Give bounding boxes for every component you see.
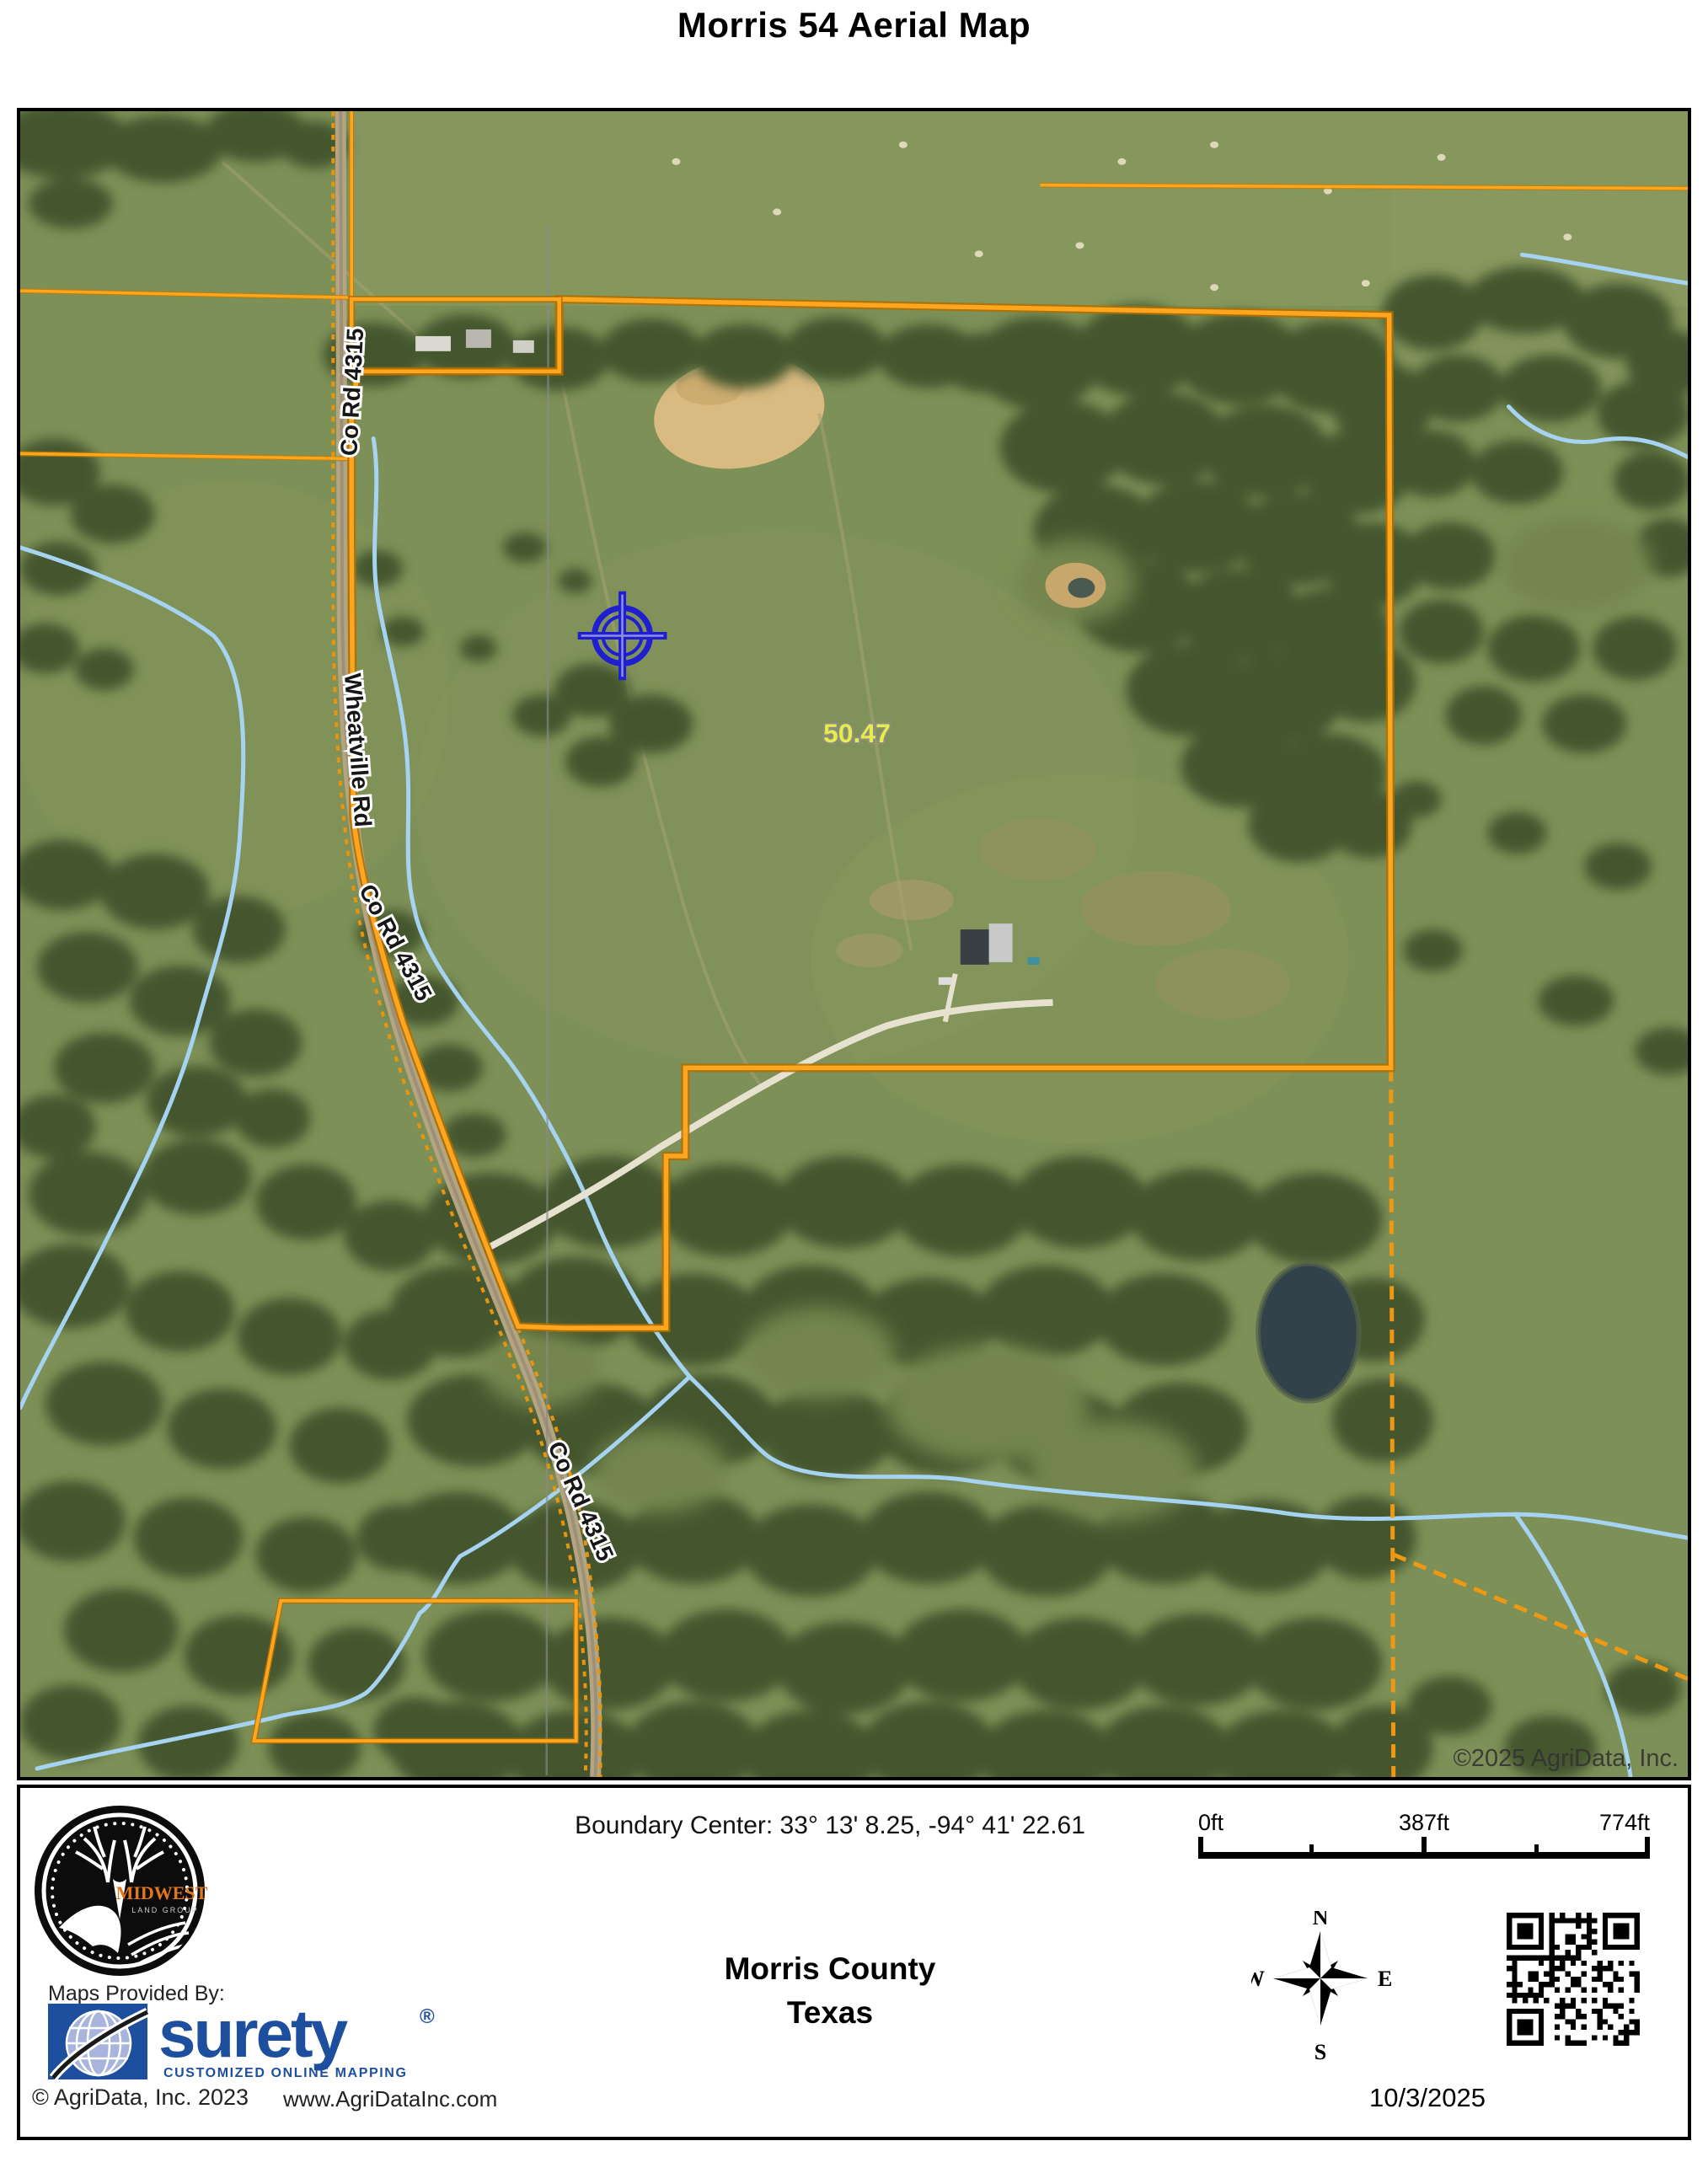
- map-copyright: ©2025 AgriData, Inc.: [1454, 1745, 1679, 1772]
- compass-south-label: S: [1314, 2040, 1326, 2064]
- agridata-copyright: © AgriData, Inc. 2023: [32, 2085, 249, 2111]
- aerial-imagery: Co Rd 4315 Wheatville Rd Co Rd 4315 Co R…: [20, 111, 1688, 1777]
- acreage-label: 50.47: [823, 718, 891, 748]
- state-name: Texas: [340, 1995, 1320, 2031]
- midwest-land-group-logo: MIDWEST LAND GROUP: [30, 1801, 209, 1980]
- county-name: Morris County: [340, 1951, 1320, 1987]
- aerial-map-page: Morris 54 Aerial Map: [0, 0, 1708, 2157]
- compass-west-label: W: [1251, 1967, 1265, 1991]
- scale-start-label: 0ft: [1198, 1810, 1224, 1835]
- page-title: Morris 54 Aerial Map: [0, 5, 1708, 45]
- scale-end-label: 774ft: [1599, 1810, 1651, 1835]
- boundary-center-coordinates: Boundary Center: 33° 13' 8.25, -94° 41' …: [340, 1812, 1320, 1840]
- surety-globe-icon: [48, 2004, 154, 2081]
- compass-rose: N S E W: [1251, 1911, 1395, 2071]
- qr-code: [1507, 1913, 1640, 2046]
- scale-bar: 0ft 387ft 774ft: [1197, 1810, 1652, 1871]
- midwest-brand-text: MIDWEST: [116, 1882, 208, 1903]
- compass-north-label: N: [1313, 1911, 1329, 1930]
- agridata-url: www.AgriDataInc.com: [283, 2086, 497, 2112]
- aerial-map-image: Co Rd 4315 Wheatville Rd Co Rd 4315 Co R…: [17, 108, 1691, 1780]
- scale-mid-label: 387ft: [1399, 1810, 1450, 1835]
- midwest-sub-text: LAND GROUP: [131, 1906, 199, 1914]
- map-footer: MIDWEST LAND GROUP Maps Provided By: sur…: [17, 1785, 1691, 2140]
- surety-logo-text: surety: [158, 2000, 345, 2068]
- compass-east-label: E: [1378, 1967, 1392, 1991]
- surety-tagline: CUSTOMIZED ONLINE MAPPING: [163, 2066, 408, 2081]
- map-date: 10/3/2025: [1309, 2083, 1545, 2113]
